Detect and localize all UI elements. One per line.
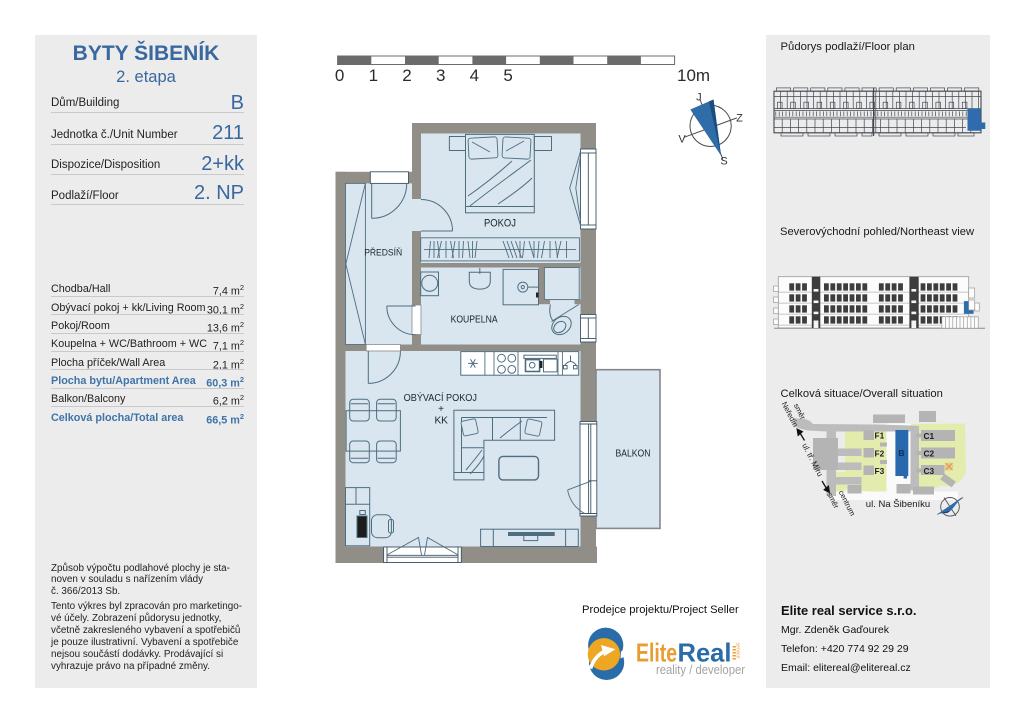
svg-text:POKOJ: POKOJ [484,218,516,230]
svg-text:BALKON: BALKON [616,449,651,460]
svg-text:ul. Na Šibeníku: ul. Na Šibeníku [866,499,930,510]
svg-text:F1: F1 [875,431,885,441]
svg-text:5: 5 [503,66,512,85]
svg-text:KOUPELNA: KOUPELNA [451,315,498,326]
svg-text:PŘEDSÍŇ: PŘEDSÍŇ [364,248,402,258]
svg-text:F2: F2 [875,449,885,459]
svg-text:C3: C3 [924,466,935,476]
svg-text:3: 3 [436,66,445,85]
svg-text:KK: KK [434,416,448,427]
svg-text:+: + [438,404,444,415]
svg-text:10m: 10m [677,66,710,85]
svg-text:F3: F3 [875,466,885,476]
svg-text:4: 4 [470,66,479,85]
svg-text:1: 1 [369,66,378,85]
svg-text:Z: Z [736,113,743,125]
svg-text:2: 2 [402,66,411,85]
svg-text:V: V [678,133,686,145]
svg-text:S: S [720,156,727,168]
svg-text:OBÝVACÍ POKOJ: OBÝVACÍ POKOJ [404,391,477,404]
svg-text:J: J [696,92,702,104]
svg-text:reality / developer: reality / developer [656,662,746,677]
svg-text:C2: C2 [924,449,935,459]
svg-text:C1: C1 [924,431,935,441]
svg-text:B: B [898,448,904,458]
svg-text:0: 0 [335,66,344,85]
